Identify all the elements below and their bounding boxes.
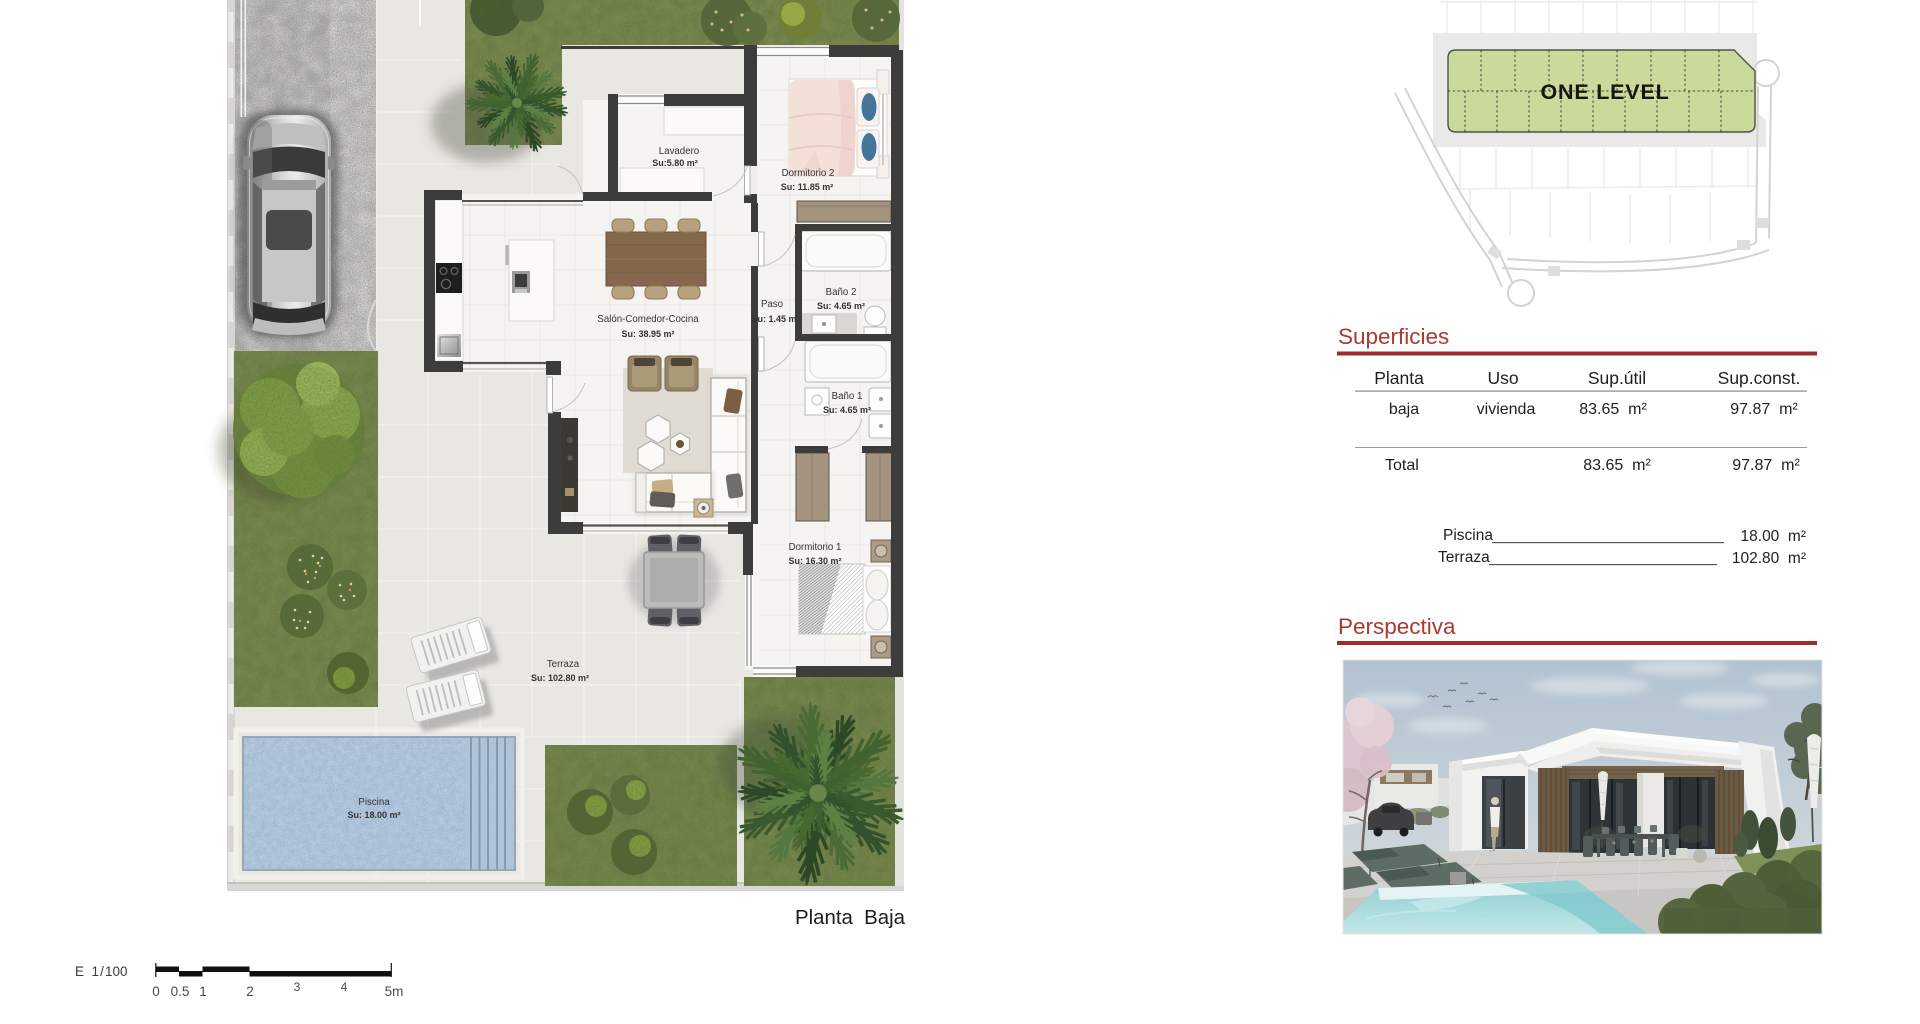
svg-text:Superficies: Superficies (1338, 324, 1449, 349)
svg-text:Planta Baja: Planta Baja (795, 906, 906, 929)
svg-text:baja: baja (1389, 401, 1419, 418)
svg-text:Total: Total (1385, 457, 1419, 474)
svg-text:ONE LEVEL: ONE LEVEL (1540, 80, 1669, 104)
svg-text:Paso: Paso (761, 299, 783, 310)
svg-text:Su: 16.30 m²: Su: 16.30 m² (788, 556, 841, 566)
svg-text:4: 4 (341, 980, 348, 994)
svg-text:1: 1 (199, 984, 207, 999)
svg-text:83.65 m²: 83.65 m² (1579, 401, 1647, 418)
svg-text:Lavadero: Lavadero (659, 146, 699, 157)
svg-text:5m: 5m (385, 984, 404, 999)
svg-text:Dormitorio 2: Dormitorio 2 (782, 168, 835, 179)
svg-text:Terraza: Terraza (547, 659, 580, 670)
svg-text:97.87 m²: 97.87 m² (1730, 401, 1798, 418)
svg-text:Terraza: Terraza (1438, 549, 1490, 566)
svg-text:Uso: Uso (1487, 368, 1518, 388)
svg-text:Su: 4.65 m²: Su: 4.65 m² (817, 301, 865, 311)
svg-text:Sup.útil: Sup.útil (1588, 368, 1646, 388)
svg-text:Su: 18.00 m²: Su: 18.00 m² (347, 810, 400, 820)
svg-text:Piscina: Piscina (358, 797, 390, 808)
svg-text:0.5: 0.5 (171, 984, 190, 999)
svg-text:0: 0 (152, 984, 160, 999)
svg-text:Su: 38.95 m²: Su: 38.95 m² (621, 329, 674, 339)
svg-text:Planta: Planta (1374, 368, 1424, 388)
svg-text:Su: 4.65 m²: Su: 4.65 m² (823, 405, 871, 415)
svg-text:Su: 11.85 m²: Su: 11.85 m² (781, 182, 834, 192)
svg-text:Su: 102.80 m²: Su: 102.80 m² (531, 673, 589, 683)
svg-text:18.00 m²: 18.00 m² (1741, 528, 1806, 545)
svg-text:Sup.const.: Sup.const. (1718, 368, 1801, 388)
svg-text:Su:5.80 m²: Su:5.80 m² (652, 158, 698, 168)
svg-text:Perspectiva: Perspectiva (1338, 614, 1456, 639)
svg-text:vivienda: vivienda (1477, 401, 1536, 418)
svg-text:83.65 m²: 83.65 m² (1583, 457, 1651, 474)
svg-text:3: 3 (294, 980, 301, 994)
svg-text:Dormitorio 1: Dormitorio 1 (789, 542, 842, 553)
svg-text:Baño 2: Baño 2 (826, 287, 857, 298)
svg-text:102.80 m²: 102.80 m² (1732, 550, 1806, 567)
svg-text:Salón-Comedor-Cocina: Salón-Comedor-Cocina (597, 314, 699, 325)
svg-text:Su: 1.45 m: Su: 1.45 m (751, 314, 796, 324)
svg-text:Baño 1: Baño 1 (832, 391, 863, 402)
svg-text:Piscina: Piscina (1443, 527, 1493, 544)
svg-text:97.87 m²: 97.87 m² (1732, 457, 1800, 474)
svg-text:2: 2 (246, 984, 254, 999)
svg-text:E 1 / 100: E 1 / 100 (75, 964, 128, 979)
